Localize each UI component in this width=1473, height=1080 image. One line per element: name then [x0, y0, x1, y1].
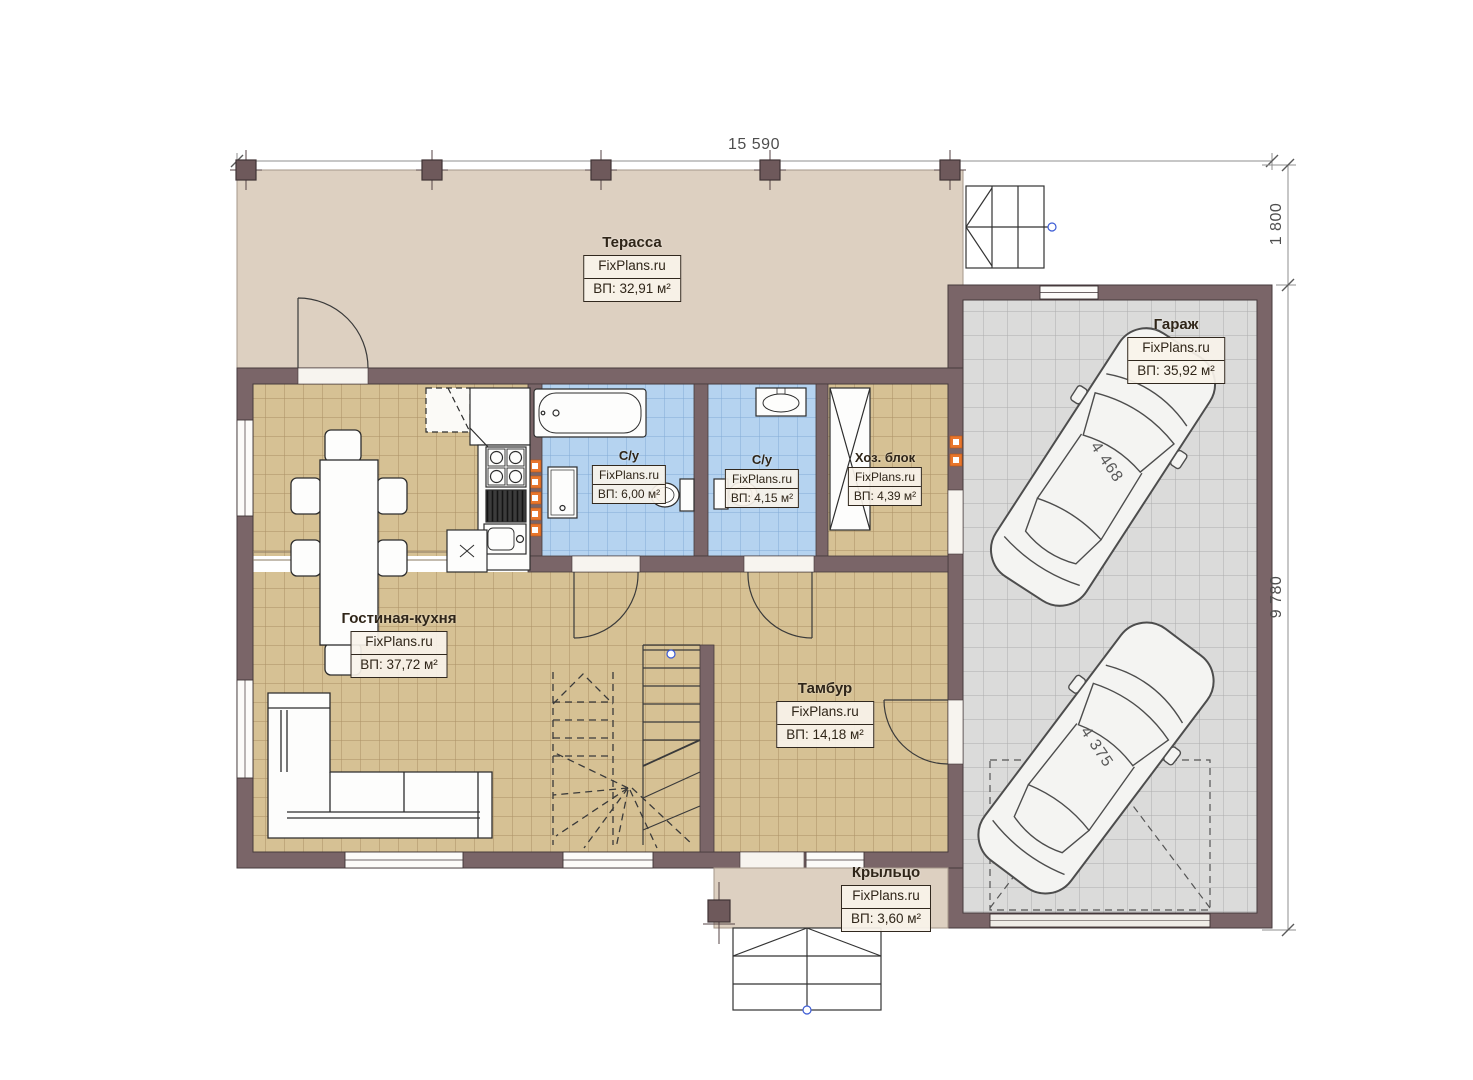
room-area: ВП: 35,92 м² [1128, 360, 1224, 383]
washing-machine [548, 467, 577, 518]
room-brand: FixPlans.ru [351, 632, 447, 654]
room-brand: FixPlans.ru [1128, 338, 1224, 360]
dim-total-width: 15 590 [694, 136, 814, 154]
room-area: ВП: 6,00 м² [593, 484, 665, 503]
room-area: ВП: 32,91 м² [584, 278, 680, 301]
drainboard [486, 490, 526, 522]
room-label-bathroom-1: С/у FixPlans.ru ВП: 6,00 м² [592, 448, 666, 504]
room-name: С/у [592, 448, 666, 464]
room-area: ВП: 3,60 м² [842, 908, 930, 931]
room-info-box: FixPlans.ru ВП: 4,39 м² [848, 467, 922, 506]
room-name: Хоз. блок [848, 450, 922, 466]
room-brand: FixPlans.ru [777, 702, 873, 724]
washbasin [756, 388, 806, 416]
room-label-terrace: Терасса FixPlans.ru ВП: 32,91 м² [583, 234, 681, 302]
bathtub [534, 389, 646, 437]
room-area: ВП: 14,18 м² [777, 724, 873, 747]
dim-house-depth: 9 780 [1268, 557, 1286, 637]
kitchen-sink [484, 524, 526, 554]
room-area: ВП: 4,15 м² [726, 488, 798, 507]
porch-steps [733, 928, 881, 1014]
room-info-box: FixPlans.ru ВП: 35,92 м² [1127, 337, 1225, 384]
room-name: Крыльцо [841, 864, 931, 883]
room-label-bathroom-2: С/у FixPlans.ru ВП: 4,15 м² [725, 452, 799, 508]
room-label-living-kitchen: Гостиная-кухня FixPlans.ru ВП: 37,72 м² [342, 610, 457, 678]
dim-terrace-depth: 1 800 [1268, 184, 1286, 264]
dishwasher [447, 530, 487, 572]
room-brand: FixPlans.ru [849, 468, 921, 486]
room-name: Тамбур [776, 680, 874, 699]
porch-column [708, 900, 730, 922]
room-brand: FixPlans.ru [842, 886, 930, 908]
room-name: Гостиная-кухня [342, 610, 457, 629]
room-area: ВП: 4,39 м² [849, 486, 921, 505]
floor-plan-page: 4 468 4 375 [0, 0, 1473, 1080]
floor-plan-drawing: 4 468 4 375 [0, 0, 1473, 1080]
room-info-box: FixPlans.ru ВП: 37,72 м² [350, 631, 448, 678]
room-name: Гараж [1127, 316, 1225, 335]
room-info-box: FixPlans.ru ВП: 6,00 м² [592, 465, 666, 504]
room-label-porch: Крыльцо FixPlans.ru ВП: 3,60 м² [841, 864, 931, 932]
room-name: Терасса [583, 234, 681, 253]
room-name: С/у [725, 452, 799, 468]
room-label-garage: Гараж FixPlans.ru ВП: 35,92 м² [1127, 316, 1225, 384]
room-brand: FixPlans.ru [584, 256, 680, 278]
terrace-steps [966, 186, 1056, 268]
room-label-vestibule: Тамбур FixPlans.ru ВП: 14,18 м² [776, 680, 874, 748]
room-info-box: FixPlans.ru ВП: 3,60 м² [841, 885, 931, 932]
room-info-box: FixPlans.ru ВП: 14,18 м² [776, 701, 874, 748]
room-info-box: FixPlans.ru ВП: 4,15 м² [725, 469, 799, 508]
room-area: ВП: 37,72 м² [351, 654, 447, 677]
room-brand: FixPlans.ru [726, 470, 798, 488]
room-info-box: FixPlans.ru ВП: 32,91 м² [583, 255, 681, 302]
room-label-utility: Хоз. блок FixPlans.ru ВП: 4,39 м² [848, 450, 922, 506]
stove [486, 447, 526, 487]
room-brand: FixPlans.ru [593, 466, 665, 484]
